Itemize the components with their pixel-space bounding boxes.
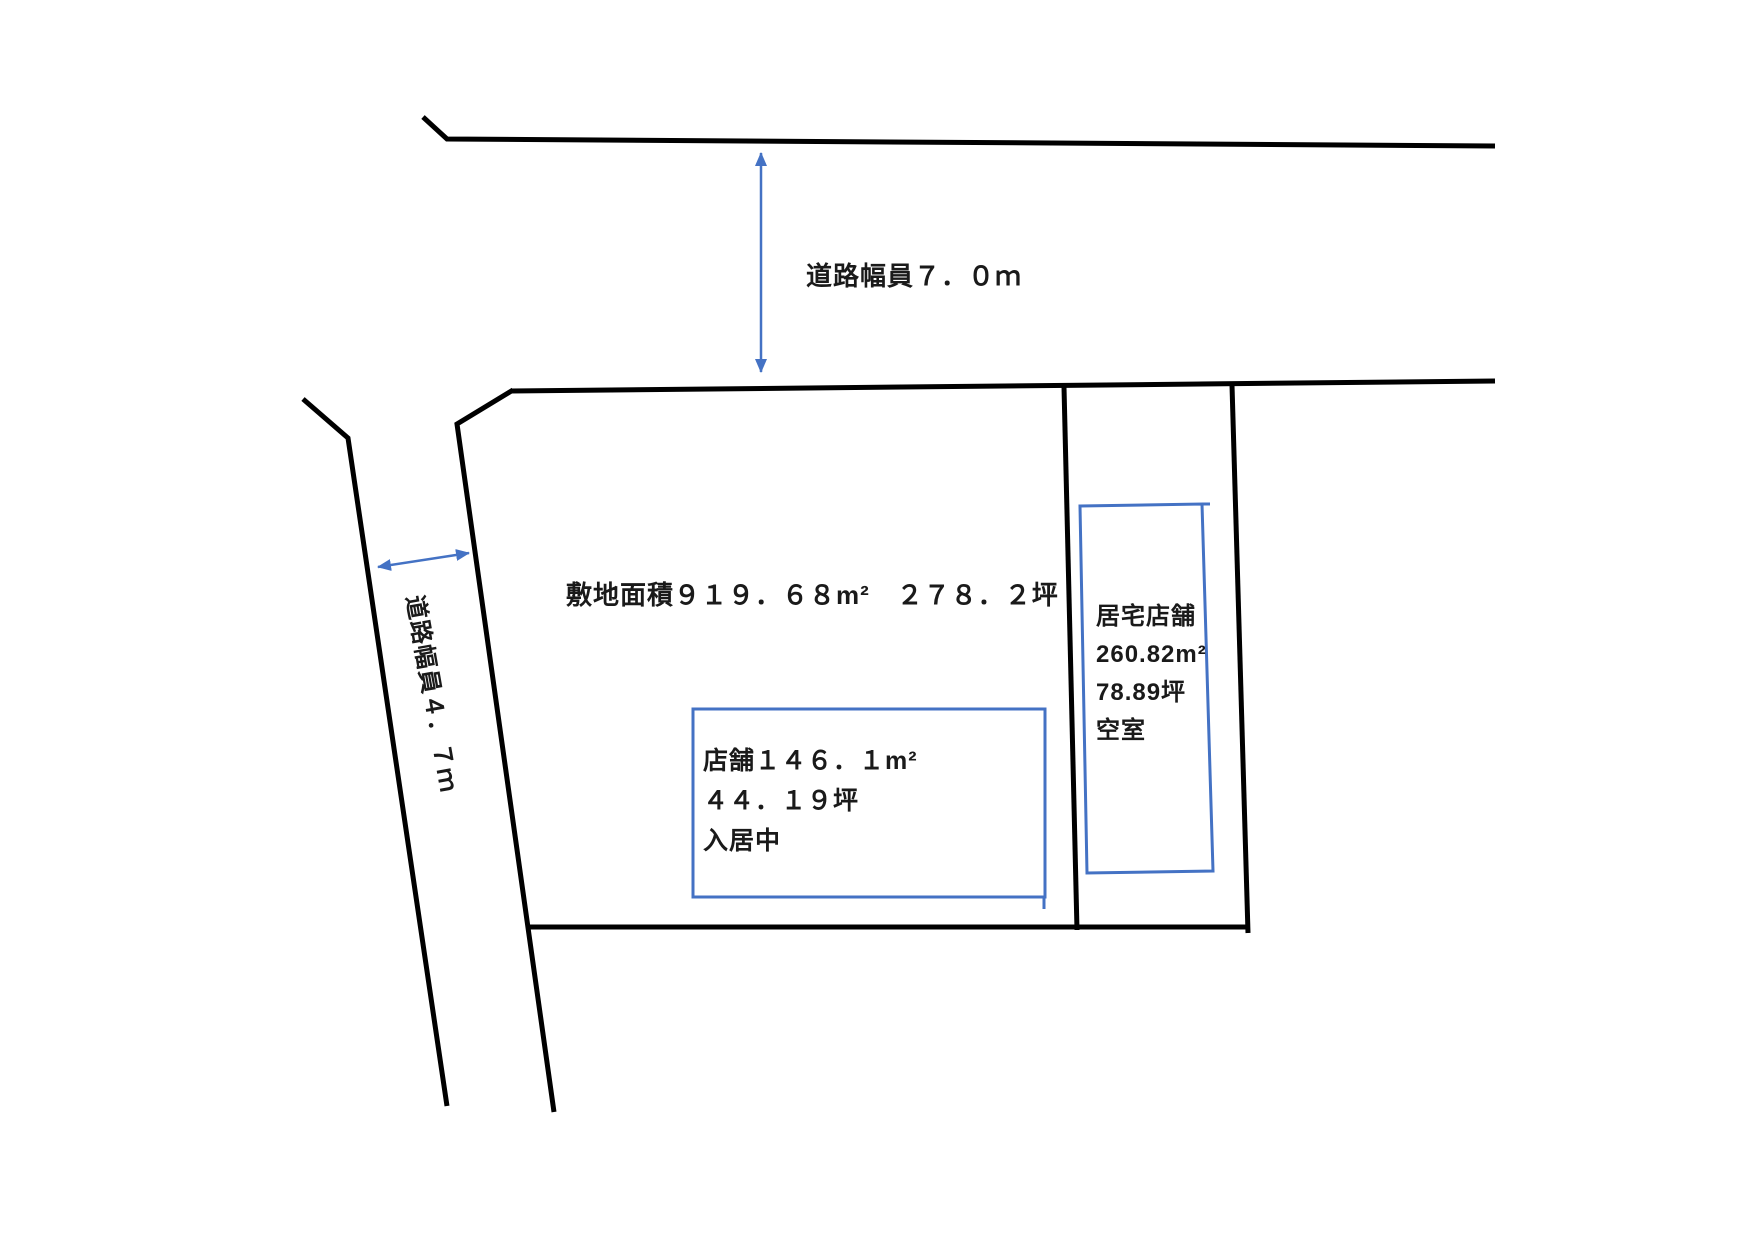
site-plan-canvas: 道路幅員７．０ｍ 道路幅員４．７ｍ 敷地面積９１９．６８m² ２７８．２坪 店舗… xyxy=(0,0,1755,1241)
residence-area-sqm: 260.82m² xyxy=(1096,636,1207,674)
residence-title: 居宅店舗 xyxy=(1096,598,1207,636)
road-left-outer-edge-line xyxy=(303,399,447,1106)
site-area-label: 敷地面積９１９．６８m² ２７８．２坪 xyxy=(566,575,1059,612)
tenant-status: 入居中 xyxy=(703,821,918,861)
road-top-width-label: 道路幅員７．０ｍ xyxy=(806,256,1022,293)
residence-area-tsubo: 78.89坪 xyxy=(1096,674,1207,712)
residence-status: 空室 xyxy=(1096,712,1207,750)
tenant-box-text: 店舗１４６．１m² ４４．１９坪 入居中 xyxy=(703,741,918,861)
tenant-area-sqm: 店舗１４６．１m² xyxy=(703,741,918,781)
plot-west-boundary-line xyxy=(457,390,554,1112)
plot-north-boundary-line xyxy=(511,381,1495,391)
parcel-divider-left-line xyxy=(1064,387,1077,930)
parcel-divider-right-line xyxy=(1232,385,1248,933)
road-left-width-arrow xyxy=(378,553,469,567)
site-plan-drawing xyxy=(0,0,1755,1241)
residence-box-text: 居宅店舗 260.82m² 78.89坪 空室 xyxy=(1096,598,1207,750)
road-top-edge-line xyxy=(423,117,1495,146)
tenant-area-tsubo: ４４．１９坪 xyxy=(703,781,918,821)
